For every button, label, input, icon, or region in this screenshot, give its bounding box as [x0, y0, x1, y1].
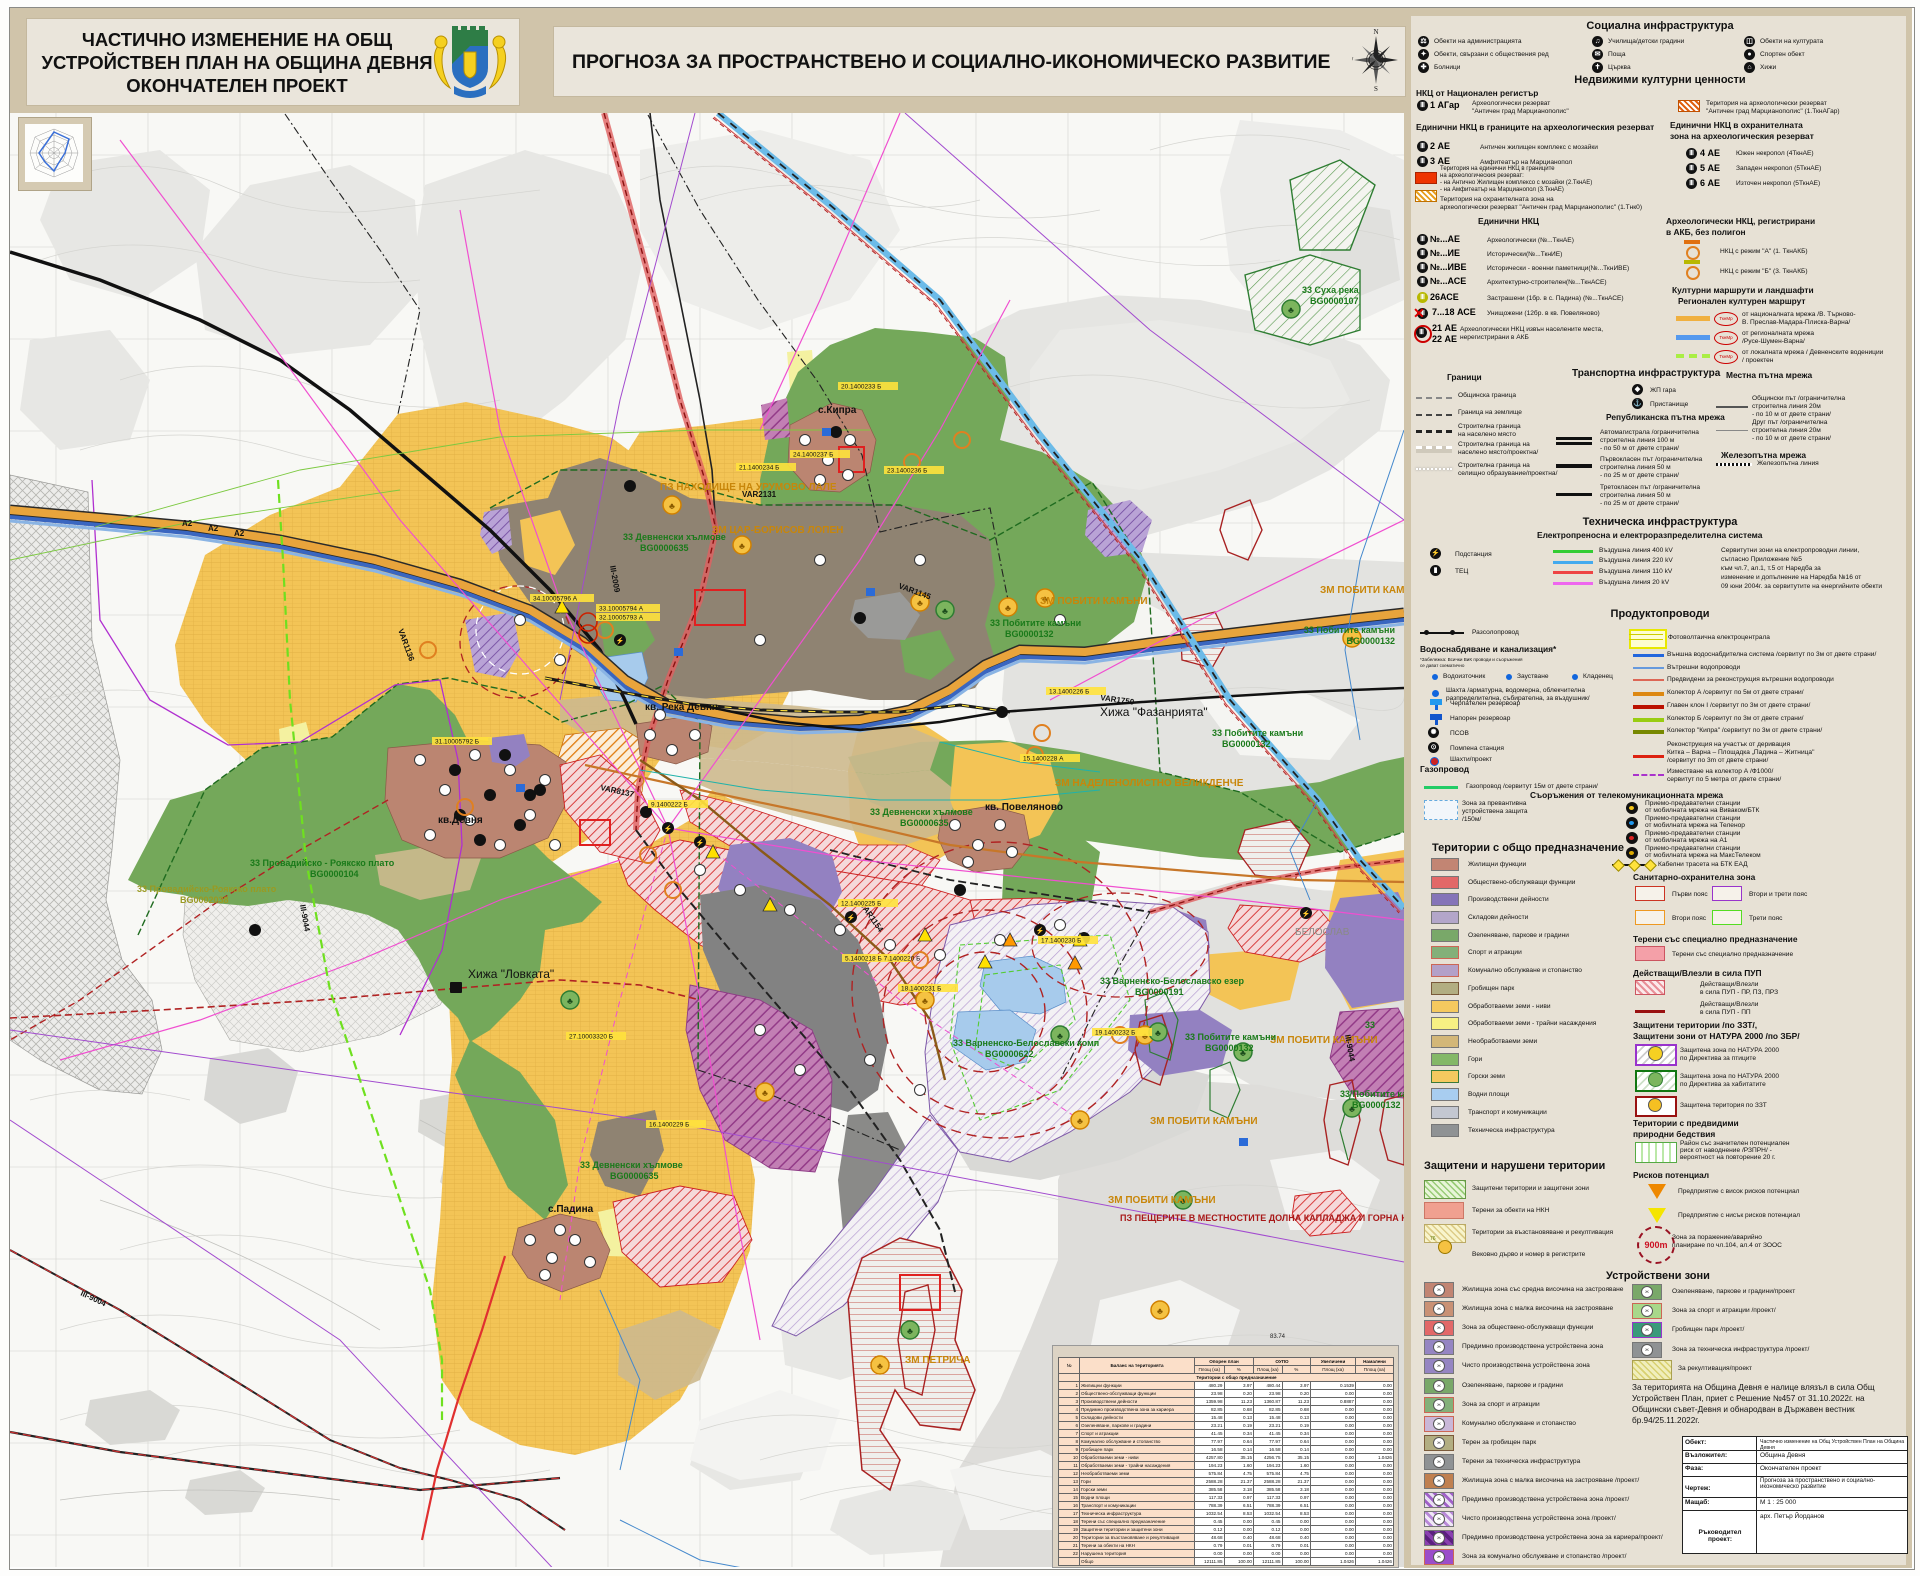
svg-text:S: S: [1374, 85, 1378, 92]
svg-text:N: N: [1373, 28, 1378, 36]
svg-text:W: W: [1352, 57, 1354, 65]
